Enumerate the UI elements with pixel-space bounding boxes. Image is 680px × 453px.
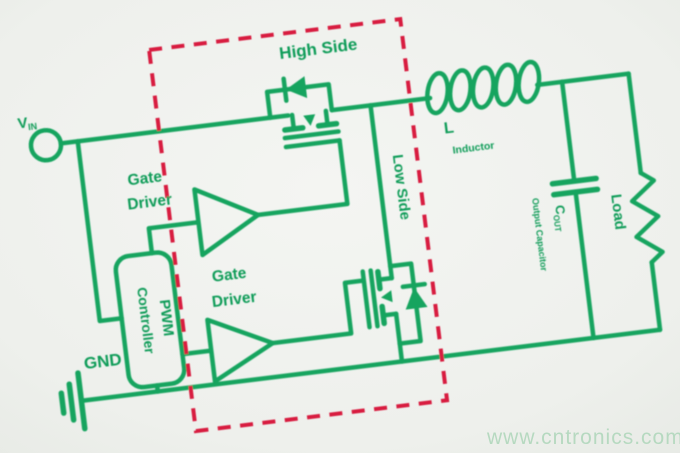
buck-converter-schematic: VIN GND High Side Low Side Gate Driver G… <box>0 0 680 453</box>
ls-drain-pad <box>378 272 380 289</box>
gnd-bar-short <box>61 393 63 413</box>
hs-drain-post <box>292 115 293 127</box>
hs-diode-cathode-bar <box>284 79 287 101</box>
hs-drain-pad <box>285 128 303 130</box>
ls-diode-cathode-bar <box>403 284 425 287</box>
ls-source-pad <box>382 306 384 323</box>
ls-drain-post <box>380 278 392 279</box>
circuit-screenshot: VIN GND High Side Low Side Gate Driver G… <box>0 0 680 453</box>
hs-source-pad <box>319 124 337 126</box>
watermark-text: www.cntronics.com <box>486 426 680 449</box>
ls-source-post <box>384 314 396 315</box>
hs-source-post <box>326 111 327 123</box>
